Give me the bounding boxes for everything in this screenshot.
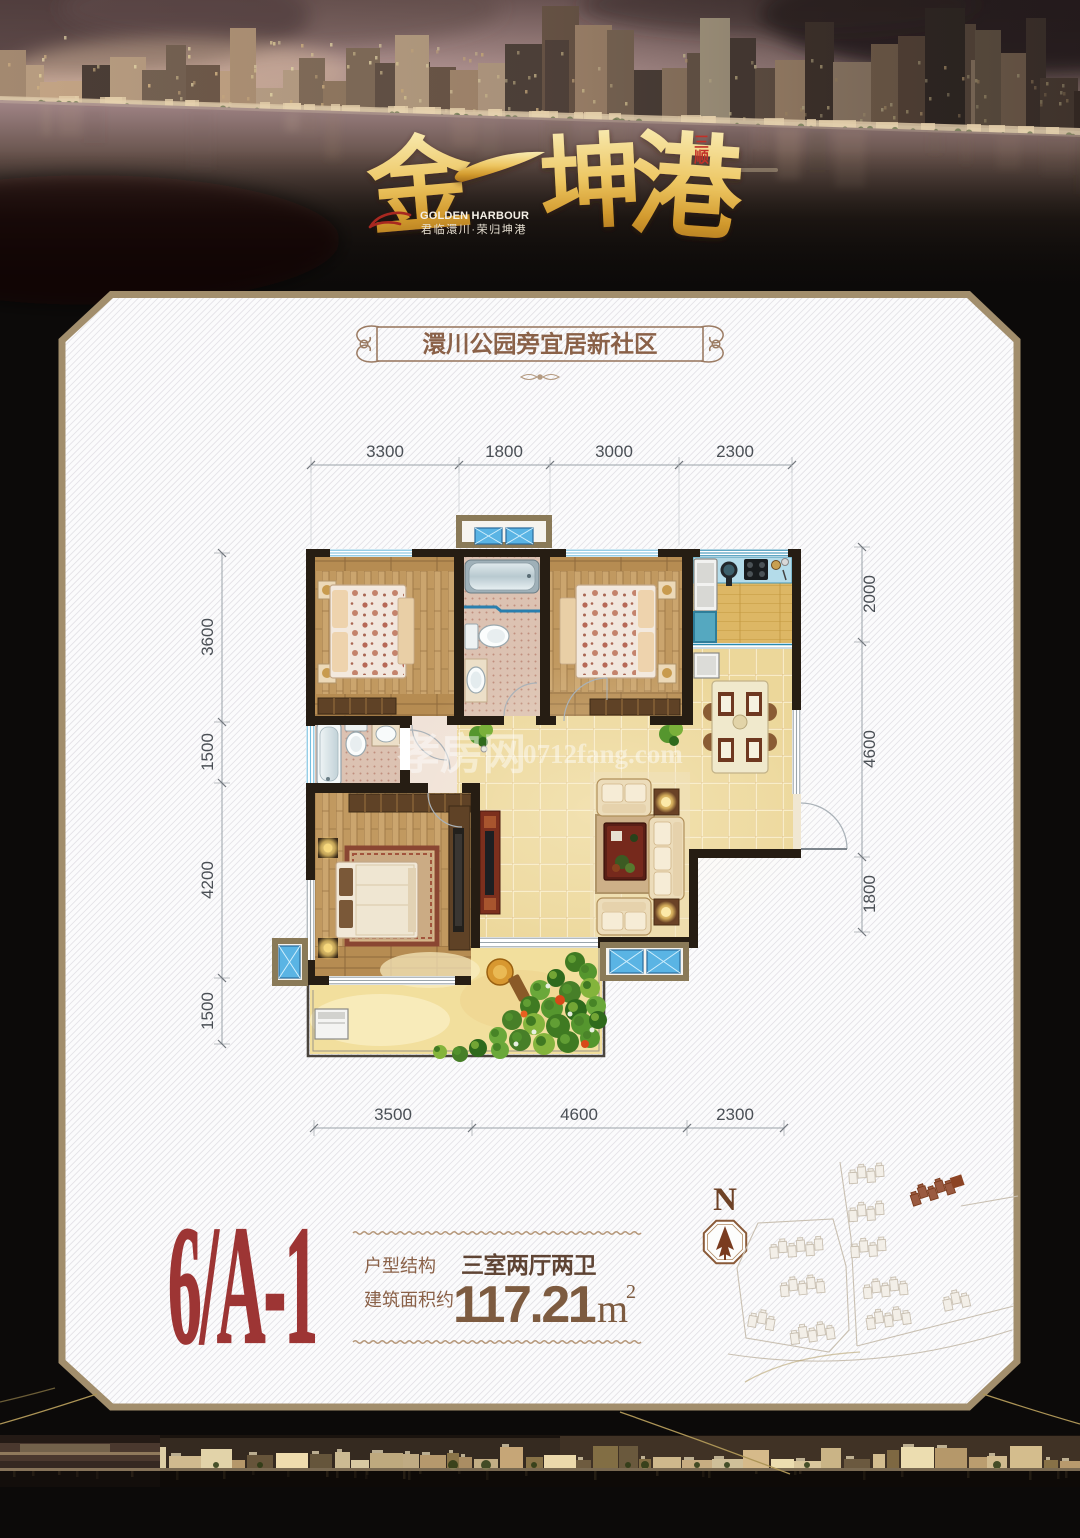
svg-text:户型结构: 户型结构: [364, 1256, 436, 1276]
svg-text:1800: 1800: [860, 875, 879, 913]
svg-text:顺: 顺: [694, 149, 709, 166]
svg-text:6/A-1: 6/A-1: [168, 1191, 316, 1379]
svg-text:1800: 1800: [485, 442, 523, 461]
svg-text:GOLDEN HARBOUR: GOLDEN HARBOUR: [420, 210, 529, 222]
svg-text:4600: 4600: [860, 730, 879, 768]
svg-text:m: m: [597, 1286, 628, 1331]
svg-text:2300: 2300: [716, 1105, 754, 1124]
svg-text:2300: 2300: [716, 442, 754, 461]
svg-text:3000: 3000: [595, 442, 633, 461]
svg-text:澴川公园旁宜居新社区: 澴川公园旁宜居新社区: [423, 330, 658, 357]
svg-text:117.21: 117.21: [453, 1276, 596, 1334]
svg-text:三室两厅两卫: 三室两厅两卫: [461, 1252, 597, 1278]
svg-text:3300: 3300: [366, 442, 404, 461]
svg-text:君临澴川·荣归坤港: 君临澴川·荣归坤港: [421, 222, 527, 236]
svg-text:4600: 4600: [560, 1105, 598, 1124]
svg-text:2: 2: [626, 1281, 636, 1303]
svg-text:1500: 1500: [198, 733, 217, 771]
svg-text:孝房网: 孝房网: [397, 731, 526, 779]
svg-text:1500: 1500: [198, 992, 217, 1030]
svg-text:3500: 3500: [374, 1105, 412, 1124]
svg-text:3600: 3600: [198, 618, 217, 656]
svg-text:三: 三: [694, 135, 709, 151]
svg-text:港: 港: [626, 123, 747, 255]
svg-text:0712fang.com: 0712fang.com: [523, 739, 683, 769]
svg-text:建筑面积约: 建筑面积约: [364, 1290, 454, 1310]
svg-text:4200: 4200: [198, 861, 217, 899]
svg-text:N: N: [713, 1182, 737, 1218]
svg-text:2000: 2000: [860, 575, 879, 613]
